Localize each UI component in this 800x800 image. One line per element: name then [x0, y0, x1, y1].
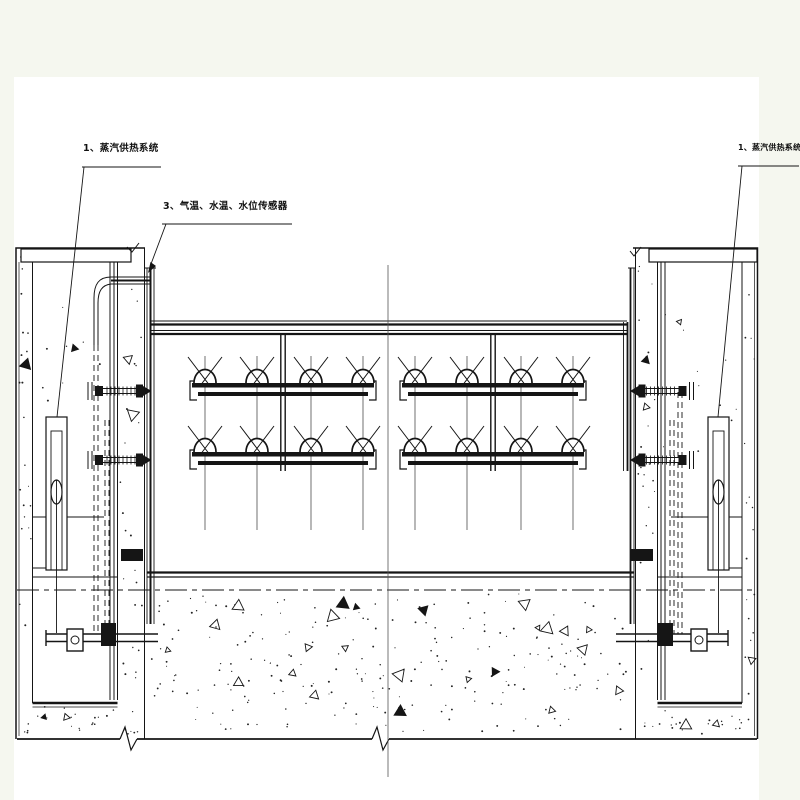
stipple-dot	[739, 727, 741, 729]
stipple-dot	[581, 657, 582, 658]
stipple-dot	[675, 723, 677, 725]
stipple-dot	[23, 504, 25, 506]
stipple-dot	[640, 668, 642, 670]
stipple-dot	[130, 731, 131, 732]
stipple-dot	[280, 613, 281, 614]
stipple-dot	[385, 725, 386, 726]
stipple-dot	[448, 718, 450, 720]
stipple-dot	[288, 654, 290, 656]
stipple-dot	[565, 653, 567, 655]
stipple-dot	[564, 666, 566, 668]
stipple-dot	[375, 603, 377, 605]
stipple-dot	[423, 730, 424, 731]
stipple-dot	[744, 656, 746, 658]
stipple-dot	[71, 726, 72, 727]
stipple-dot	[537, 654, 538, 655]
stipple-dot	[577, 638, 579, 640]
stipple-dot	[359, 612, 360, 613]
stipple-dot	[141, 605, 143, 607]
stipple-dot	[157, 687, 159, 689]
stipple-dot	[751, 338, 752, 339]
stipple-dot	[315, 622, 317, 624]
stipple-dot	[247, 702, 249, 704]
stipple-dot	[524, 667, 525, 668]
stipple-dot	[425, 622, 426, 623]
stipple-dot	[554, 718, 556, 720]
stipple-dot	[505, 601, 506, 602]
stipple-dot	[19, 489, 21, 491]
stipple-dot	[383, 675, 384, 676]
stipple-dot	[467, 602, 469, 604]
stipple-dot	[24, 516, 25, 517]
stipple-dot	[451, 637, 452, 638]
stipple-dot	[548, 660, 549, 661]
stipple-dot	[134, 604, 136, 606]
stipple-dot	[647, 351, 649, 353]
stipple-dot	[230, 728, 231, 729]
stipple-dot	[284, 599, 285, 600]
stipple-dot	[525, 718, 526, 719]
stipple-dot	[648, 425, 649, 426]
stipple-dot	[159, 683, 161, 685]
stipple-dot	[276, 665, 278, 667]
nozzle-rail-bar2	[198, 461, 368, 465]
stipple-dot	[739, 719, 740, 720]
stipple-dot	[410, 680, 412, 682]
stipple-dot	[225, 605, 227, 607]
stipple-dot	[190, 598, 191, 599]
label-sensors: 3、气温、水温、水位传感器	[163, 200, 288, 212]
stipple-dot	[281, 680, 283, 682]
stipple-dot	[313, 683, 314, 684]
stipple-dot	[244, 641, 246, 643]
stipple-dot	[264, 660, 265, 661]
stipple-dot	[484, 612, 486, 614]
stipple-dot	[536, 636, 538, 638]
stipple-dot	[570, 650, 571, 651]
stipple-dot	[287, 723, 289, 725]
stipple-dot	[731, 420, 733, 422]
stipple-dot	[652, 726, 653, 727]
stipple-dot	[232, 710, 233, 711]
stipple-dot	[394, 647, 395, 648]
stipple-dot	[122, 663, 124, 665]
stipple-dot	[731, 716, 732, 717]
stipple-dot	[27, 332, 29, 334]
stipple-dot	[642, 485, 643, 486]
stipple-dot	[130, 535, 132, 537]
stipple-dot	[133, 732, 135, 734]
stipple-dot	[231, 671, 232, 672]
stipple-dot	[438, 661, 439, 662]
stipple-dot	[334, 715, 335, 716]
stipple-dot	[576, 686, 577, 687]
stipple-dot	[620, 699, 621, 700]
stipple-dot	[404, 709, 406, 711]
stipple-dot	[725, 360, 726, 361]
stipple-dot	[683, 330, 684, 331]
stipple-dot	[514, 655, 515, 656]
pipe-fitting-block	[658, 623, 673, 646]
valve-body	[67, 629, 83, 651]
nozzle-rail-bar2	[408, 392, 578, 396]
stipple-dot	[94, 723, 96, 725]
stipple-dot	[219, 669, 221, 671]
stipple-dot	[158, 610, 160, 612]
stipple-dot	[62, 382, 63, 383]
stipple-dot	[300, 664, 301, 665]
stipple-dot	[529, 653, 531, 655]
stipple-dot	[132, 647, 133, 648]
stipple-dot	[212, 713, 213, 714]
stipple-dot	[353, 639, 354, 640]
stipple-dot	[377, 707, 378, 708]
stipple-dot	[484, 624, 485, 625]
stipple-dot	[640, 562, 642, 564]
stipple-dot	[412, 704, 414, 706]
stipple-dot	[638, 319, 640, 321]
stipple-dot	[719, 404, 721, 406]
stipple-dot	[367, 618, 369, 620]
stipple-dot	[361, 680, 362, 681]
stipple-dot	[26, 351, 28, 353]
stipple-dot	[652, 480, 654, 482]
stipple-dot	[434, 638, 436, 640]
stipple-dot	[451, 709, 453, 711]
stipple-dot	[361, 678, 363, 680]
stipple-dot	[721, 721, 722, 722]
nozzle-rail-bar	[402, 452, 584, 457]
stipple-dot	[584, 663, 586, 665]
stipple-dot	[262, 638, 263, 639]
stipple-dot	[388, 688, 390, 690]
stipple-dot	[596, 688, 598, 690]
stipple-dot	[166, 666, 167, 667]
stipple-dot	[92, 722, 94, 724]
fitting-flange	[136, 454, 143, 467]
stipple-dot	[506, 636, 507, 637]
stipple-dot	[750, 640, 751, 641]
stipple-dot	[430, 684, 432, 686]
left-pier-top-cap	[21, 249, 131, 262]
stipple-dot	[649, 463, 650, 464]
fitting-flange	[639, 385, 646, 398]
stipple-dot	[622, 628, 624, 630]
drawing-sheet-page: 1、蒸汽供热系统 3、气温、水温、水位传感器 1、蒸汽供热系统	[0, 0, 800, 800]
fitting-nut	[679, 455, 687, 465]
stipple-dot	[28, 486, 29, 487]
stipple-dot	[671, 727, 673, 729]
stipple-dot	[314, 607, 316, 609]
stipple-dot	[663, 446, 664, 447]
stipple-dot	[160, 648, 161, 649]
stipple-dot	[252, 632, 254, 634]
stipple-dot	[708, 719, 710, 721]
stipple-dot	[445, 660, 447, 662]
stipple-dot	[746, 599, 747, 600]
stipple-dot	[492, 703, 494, 705]
stipple-dot	[197, 707, 198, 708]
stipple-dot	[741, 722, 743, 724]
stipple-dot	[178, 629, 180, 631]
stipple-dot	[508, 684, 510, 686]
stipple-dot	[373, 706, 374, 707]
stipple-dot	[518, 593, 519, 594]
stipple-dot	[154, 695, 156, 697]
stipple-dot	[560, 725, 561, 726]
stipple-dot	[698, 385, 699, 386]
stipple-dot	[134, 363, 136, 365]
stipple-dot	[575, 689, 576, 690]
stipple-dot	[135, 365, 136, 366]
stipple-dot	[749, 496, 750, 497]
stipple-dot	[106, 715, 108, 717]
stipple-dot	[436, 642, 437, 643]
stipple-dot	[664, 710, 665, 711]
stipple-dot	[397, 599, 398, 600]
stipple-dot	[654, 399, 655, 400]
stipple-dot	[489, 646, 490, 647]
stipple-dot	[556, 673, 557, 674]
stipple-dot	[640, 446, 642, 448]
stipple-dot	[124, 673, 126, 675]
stipple-dot	[654, 491, 655, 492]
stipple-dot	[312, 641, 314, 643]
stipple-dot	[465, 687, 467, 689]
stipple-dot	[392, 619, 394, 621]
stipple-dot	[331, 691, 333, 693]
stipple-dot	[277, 602, 278, 603]
stipple-dot	[748, 618, 750, 620]
stipple-dot	[22, 268, 24, 270]
stipple-dot	[639, 266, 640, 267]
nozzle-rail-bar2	[408, 461, 578, 465]
stipple-dot	[513, 730, 515, 732]
stipple-dot	[356, 669, 357, 670]
stipple-dot	[244, 696, 246, 698]
stipple-dot	[131, 289, 132, 290]
stipple-dot	[225, 728, 227, 730]
stipple-dot	[30, 538, 31, 539]
fitting-flange	[639, 454, 646, 467]
stipple-dot	[744, 443, 745, 444]
label-steam-system-right: 1、蒸汽供热系统	[738, 142, 800, 152]
stipple-dot	[697, 371, 698, 372]
stipple-dot	[746, 502, 747, 503]
stipple-dot	[620, 728, 622, 730]
stipple-dot	[37, 715, 38, 716]
stipple-dot	[652, 532, 653, 533]
stipple-dot	[484, 630, 486, 632]
stipple-dot	[735, 728, 736, 729]
stipple-dot	[91, 724, 93, 726]
stipple-dot	[357, 673, 358, 674]
stipple-dot	[372, 691, 373, 692]
stipple-dot	[159, 605, 161, 607]
stipple-dot	[136, 582, 138, 584]
stipple-dot	[614, 618, 616, 620]
stipple-dot	[600, 653, 602, 655]
stipple-dot	[748, 719, 750, 721]
stipple-dot	[752, 529, 753, 530]
stipple-dot	[553, 614, 554, 615]
nozzle-rail-bar	[192, 452, 374, 457]
stipple-dot	[469, 617, 471, 619]
stipple-dot	[303, 686, 304, 687]
stipple-dot	[637, 473, 639, 475]
valve-body	[691, 629, 707, 651]
stipple-dot	[355, 713, 357, 715]
stipple-dot	[501, 704, 502, 705]
stipple-dot	[62, 307, 63, 308]
stipple-dot	[163, 624, 165, 626]
stipple-dot	[220, 724, 221, 725]
stipple-dot	[123, 578, 124, 579]
stipple-dot	[326, 625, 328, 627]
stipple-dot	[215, 605, 217, 607]
stipple-dot	[79, 728, 80, 729]
stipple-dot	[382, 687, 384, 689]
paper-area	[14, 77, 759, 800]
stipple-dot	[644, 722, 645, 723]
stipple-dot	[23, 417, 25, 419]
stipple-dot	[167, 600, 169, 602]
stipple-dot	[335, 668, 337, 670]
stipple-dot	[345, 617, 346, 618]
nozzle-rail-bar	[192, 383, 374, 388]
stipple-dot	[651, 283, 652, 284]
stipple-dot	[561, 643, 562, 644]
stipple-dot	[175, 674, 177, 676]
stipple-dot	[752, 507, 754, 509]
stipple-dot	[305, 703, 306, 704]
stipple-dot	[345, 703, 347, 705]
stipple-dot	[744, 337, 746, 339]
stipple-dot	[215, 626, 217, 628]
stipple-dot	[135, 677, 136, 678]
stipple-dot	[361, 658, 362, 659]
gate-steam-heating-drawing: 1、蒸汽供热系统 3、气温、水温、水位传感器 1、蒸汽供热系统	[0, 0, 800, 800]
stipple-dot	[137, 300, 138, 301]
stipple-dot	[195, 719, 196, 720]
stipple-dot	[122, 512, 124, 514]
stipple-dot	[379, 677, 381, 679]
stipple-dot	[274, 693, 276, 695]
stipple-dot	[373, 697, 374, 698]
stipple-dot	[451, 685, 453, 687]
stipple-dot	[24, 624, 26, 626]
stipple-dot	[66, 346, 67, 347]
stipple-dot	[83, 341, 84, 342]
stipple-dot	[499, 632, 501, 634]
stipple-dot	[640, 467, 641, 468]
stipple-dot	[125, 530, 127, 532]
stipple-dot	[338, 653, 339, 654]
stipple-dot	[46, 348, 48, 350]
stipple-dot	[230, 663, 232, 665]
stipple-dot	[286, 726, 287, 727]
stipple-dot	[247, 723, 249, 725]
stipple-dot	[402, 731, 403, 732]
stipple-dot	[248, 700, 249, 701]
stipple-dot	[488, 594, 490, 596]
fitting-nut	[95, 455, 103, 465]
stipple-dot	[47, 400, 49, 402]
stipple-dot	[99, 363, 101, 365]
stipple-dot	[138, 650, 140, 652]
stipple-dot	[290, 655, 292, 657]
stipple-dot	[328, 693, 329, 694]
stipple-dot	[646, 525, 647, 526]
stipple-dot	[271, 675, 273, 677]
stipple-dot	[186, 692, 188, 694]
stipple-dot	[191, 612, 193, 614]
stipple-dot	[214, 684, 216, 686]
stipple-dot	[671, 724, 672, 725]
stipple-dot	[205, 602, 206, 603]
stipple-dot	[430, 650, 432, 652]
stipple-dot	[414, 668, 416, 670]
stipple-dot	[434, 627, 436, 629]
stipple-dot	[579, 684, 581, 686]
fitting-nut	[95, 386, 103, 396]
stipple-dot	[311, 685, 313, 687]
stipple-dot	[537, 725, 539, 727]
right-pier-top-cap	[649, 249, 757, 262]
stipple-dot	[551, 656, 553, 658]
stipple-dot	[638, 271, 639, 272]
stipple-dot	[343, 707, 344, 708]
stipple-dot	[433, 603, 435, 605]
stipple-dot	[282, 691, 283, 692]
stipple-dot	[420, 662, 421, 663]
stipple-dot	[362, 618, 364, 620]
nozzle-rail-bar	[402, 383, 584, 388]
stipple-dot	[594, 632, 596, 634]
stipple-dot	[619, 663, 621, 665]
stipple-dot	[198, 689, 199, 690]
stipple-dot	[312, 626, 313, 627]
stipple-dot	[577, 656, 578, 657]
stipple-dot	[113, 709, 114, 710]
stipple-dot	[172, 638, 174, 640]
stipple-dot	[71, 717, 72, 718]
stipple-dot	[679, 722, 681, 724]
stipple-dot	[748, 294, 750, 296]
stipple-dot	[94, 717, 96, 719]
stipple-dot	[209, 637, 210, 638]
stipple-dot	[21, 528, 23, 530]
stipple-dot	[120, 481, 122, 483]
stipple-dot	[21, 382, 23, 384]
stipple-dot	[474, 700, 475, 701]
stipple-dot	[568, 719, 569, 720]
stipple-dot	[220, 663, 221, 664]
stipple-dot	[27, 730, 29, 732]
stipple-dot	[174, 675, 175, 676]
stipple-dot	[644, 725, 646, 727]
stipple-dot	[249, 635, 251, 637]
stipple-dot	[356, 723, 357, 724]
stipple-dot	[463, 628, 464, 629]
stipple-dot	[415, 621, 417, 623]
stipple-dot	[137, 731, 138, 732]
stipple-dot	[748, 693, 750, 695]
stipple-dot	[508, 669, 510, 671]
stipple-dot	[30, 505, 32, 507]
stipple-dot	[202, 596, 203, 597]
stipple-dot	[138, 422, 139, 423]
